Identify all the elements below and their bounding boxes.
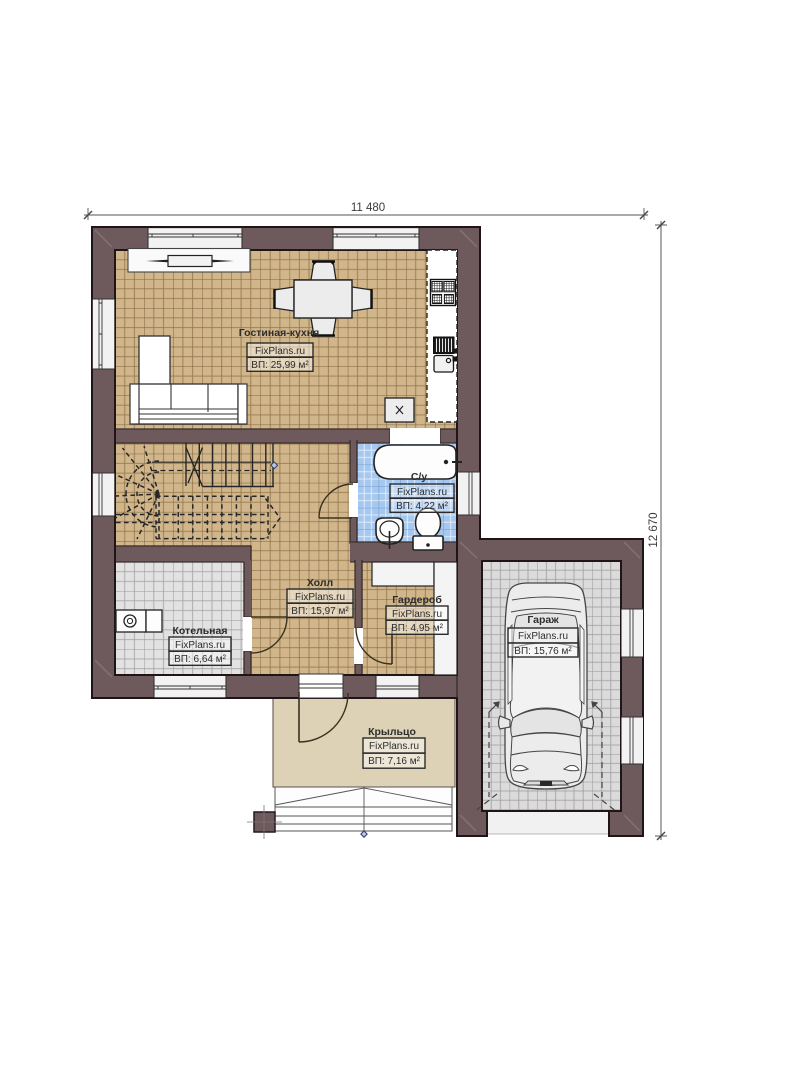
svg-text:ВП: 4,95 м²: ВП: 4,95 м² [391, 623, 444, 634]
svg-text:FixPlans.ru: FixPlans.ru [295, 592, 345, 603]
svg-text:ВП: 4,22 м²: ВП: 4,22 м² [396, 501, 449, 512]
svg-text:ВП: 7,16 м²: ВП: 7,16 м² [368, 756, 421, 767]
svg-text:FixPlans.ru: FixPlans.ru [518, 631, 568, 642]
svg-text:ВП: 6,64 м²: ВП: 6,64 м² [174, 654, 227, 665]
svg-text:FixPlans.ru: FixPlans.ru [397, 487, 447, 498]
svg-text:FixPlans.ru: FixPlans.ru [255, 346, 305, 357]
svg-text:Холл: Холл [307, 577, 333, 589]
svg-text:Котельная: Котельная [173, 625, 228, 637]
svg-text:Гардероб: Гардероб [392, 594, 442, 606]
svg-text:FixPlans.ru: FixPlans.ru [392, 609, 442, 620]
svg-text:FixPlans.ru: FixPlans.ru [369, 741, 419, 752]
svg-text:Гостиная-кухня: Гостиная-кухня [239, 327, 319, 339]
svg-text:Крыльцо: Крыльцо [368, 726, 416, 738]
svg-text:ВП: 15,76 м²: ВП: 15,76 м² [514, 646, 572, 657]
svg-text:ВП: 25,99 м²: ВП: 25,99 м² [251, 360, 309, 371]
svg-text:FixPlans.ru: FixPlans.ru [175, 640, 225, 651]
svg-text:С/у: С/у [411, 471, 428, 483]
svg-text:Гараж: Гараж [527, 614, 559, 626]
svg-text:11 480: 11 480 [351, 202, 385, 214]
svg-text:12 670: 12 670 [648, 512, 660, 547]
svg-text:ВП: 15,97 м²: ВП: 15,97 м² [291, 606, 349, 617]
